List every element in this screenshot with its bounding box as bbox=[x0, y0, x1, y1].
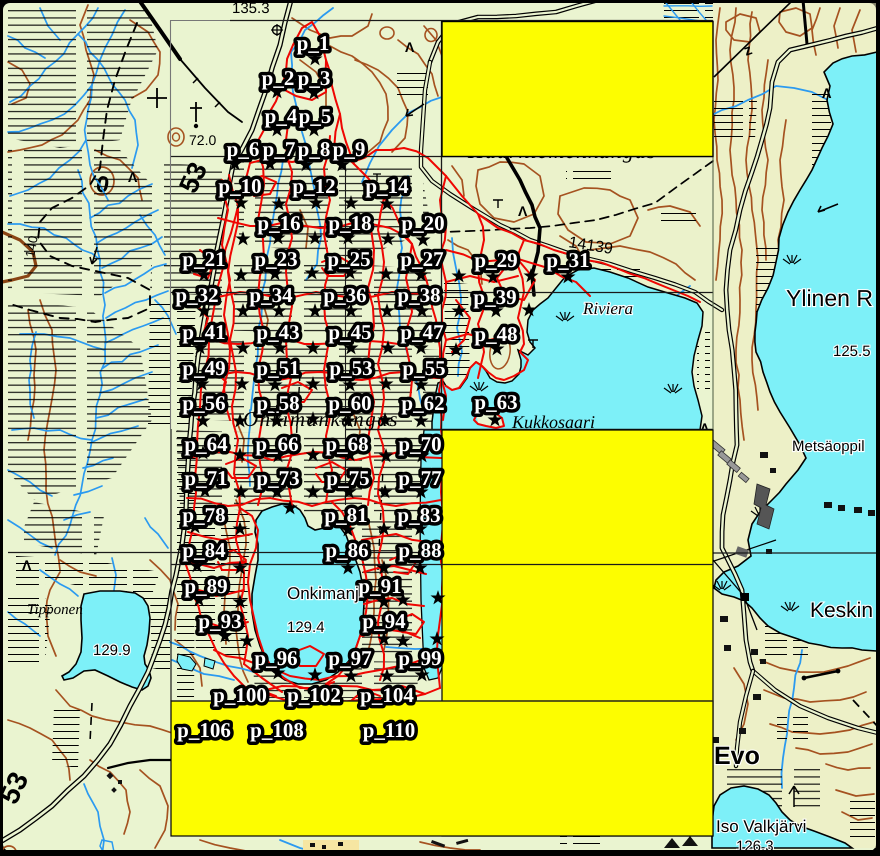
svg-text:Λ: Λ bbox=[128, 169, 138, 185]
svg-text:p_21: p_21 bbox=[182, 247, 225, 271]
svg-text:p_108: p_108 bbox=[250, 718, 304, 742]
svg-text:p_18: p_18 bbox=[328, 211, 371, 235]
svg-text:p_41: p_41 bbox=[182, 320, 225, 344]
svg-text:72.0: 72.0 bbox=[189, 132, 216, 148]
svg-text:p_3: p_3 bbox=[298, 66, 331, 90]
svg-text:p_5: p_5 bbox=[299, 104, 332, 128]
svg-text:Λ: Λ bbox=[518, 203, 528, 219]
svg-text:p_36: p_36 bbox=[323, 283, 366, 307]
svg-text:p_70: p_70 bbox=[398, 432, 441, 456]
svg-text:p_96: p_96 bbox=[254, 646, 297, 670]
svg-text:129.4: 129.4 bbox=[287, 619, 325, 636]
svg-text:p_104: p_104 bbox=[360, 683, 414, 707]
svg-text:p_94: p_94 bbox=[362, 609, 406, 633]
svg-text:p_110: p_110 bbox=[363, 718, 416, 742]
svg-text:p_51: p_51 bbox=[256, 356, 299, 380]
svg-text:p_63: p_63 bbox=[474, 390, 517, 414]
svg-text:p_64: p_64 bbox=[184, 432, 228, 456]
svg-text:p_97: p_97 bbox=[328, 646, 371, 670]
svg-text:p_49: p_49 bbox=[182, 356, 225, 380]
svg-text:p_47: p_47 bbox=[400, 320, 443, 344]
svg-text:p_75: p_75 bbox=[326, 466, 369, 490]
svg-text:p_93: p_93 bbox=[198, 609, 241, 633]
svg-text:p_43: p_43 bbox=[256, 320, 299, 344]
svg-text:p_45: p_45 bbox=[328, 320, 371, 344]
svg-text:Λ: Λ bbox=[405, 39, 415, 55]
svg-text:Kukkosaari: Kukkosaari bbox=[511, 412, 595, 432]
svg-text:p_53: p_53 bbox=[329, 356, 372, 380]
svg-text:p_1: p_1 bbox=[297, 31, 330, 55]
svg-text:p_83: p_83 bbox=[397, 503, 440, 527]
svg-text:p_62: p_62 bbox=[401, 391, 444, 415]
svg-text:p_25: p_25 bbox=[327, 247, 370, 271]
svg-text:p_77: p_77 bbox=[398, 466, 441, 490]
svg-text:p_32: p_32 bbox=[175, 283, 218, 307]
svg-text:p_78: p_78 bbox=[182, 503, 225, 527]
svg-text:p_6: p_6 bbox=[227, 137, 260, 161]
svg-text:p_71: p_71 bbox=[184, 466, 227, 490]
svg-text:Ylinen R: Ylinen R bbox=[786, 285, 873, 311]
svg-text:p_56: p_56 bbox=[182, 391, 225, 415]
svg-text:p_73: p_73 bbox=[256, 466, 299, 490]
svg-text:p_29: p_29 bbox=[474, 248, 517, 272]
svg-text:p_86: p_86 bbox=[325, 538, 368, 562]
svg-text:125.5: 125.5 bbox=[833, 343, 871, 360]
svg-text:p_89: p_89 bbox=[184, 574, 227, 598]
svg-text:p_14: p_14 bbox=[365, 174, 409, 198]
svg-text:p_38: p_38 bbox=[397, 283, 440, 307]
svg-text:p_7: p_7 bbox=[263, 137, 296, 161]
svg-text:p_39: p_39 bbox=[473, 285, 516, 309]
svg-text:p_4: p_4 bbox=[265, 104, 298, 128]
svg-text:p_12: p_12 bbox=[292, 174, 335, 198]
svg-text:Keskin: Keskin bbox=[810, 599, 873, 622]
svg-text:p_16: p_16 bbox=[257, 211, 300, 235]
svg-text:Iso Valkjärvi: Iso Valkjärvi bbox=[716, 817, 806, 836]
svg-text:p_23: p_23 bbox=[254, 247, 297, 271]
svg-text:p_8: p_8 bbox=[298, 137, 331, 161]
svg-text:p_66: p_66 bbox=[255, 432, 298, 456]
svg-text:p_88: p_88 bbox=[398, 538, 441, 562]
svg-text:p_102: p_102 bbox=[287, 683, 341, 707]
svg-text:Tipponen: Tipponen bbox=[27, 602, 83, 618]
svg-text:p_2: p_2 bbox=[262, 66, 295, 90]
svg-text:Evo: Evo bbox=[714, 742, 760, 770]
svg-text:Λ: Λ bbox=[822, 85, 832, 101]
svg-text:p_106: p_106 bbox=[177, 718, 231, 742]
svg-text:Metsäoppil: Metsäoppil bbox=[792, 438, 865, 455]
svg-text:p_91: p_91 bbox=[358, 574, 401, 598]
svg-text:p_55: p_55 bbox=[402, 356, 445, 380]
svg-text:Onkimanj: Onkimanj bbox=[287, 584, 359, 603]
svg-text:p_81: p_81 bbox=[324, 503, 367, 527]
svg-text:p_10: p_10 bbox=[218, 174, 261, 198]
svg-text:Onkimankangas: Onkimankangas bbox=[243, 407, 399, 431]
svg-text:Riviera: Riviera bbox=[582, 299, 633, 318]
svg-text:p_48: p_48 bbox=[474, 322, 517, 346]
svg-text:Λ: Λ bbox=[22, 557, 32, 573]
svg-text:p_99: p_99 bbox=[398, 646, 441, 670]
svg-text:p_68: p_68 bbox=[325, 432, 368, 456]
svg-text:p_27: p_27 bbox=[400, 247, 443, 271]
svg-text:p_84: p_84 bbox=[182, 538, 226, 562]
svg-text:p_20: p_20 bbox=[401, 211, 444, 235]
svg-text:p_100: p_100 bbox=[213, 683, 267, 707]
svg-text:p_9: p_9 bbox=[333, 137, 366, 161]
svg-text:129.9: 129.9 bbox=[93, 642, 131, 659]
svg-text:p_34: p_34 bbox=[249, 283, 293, 307]
